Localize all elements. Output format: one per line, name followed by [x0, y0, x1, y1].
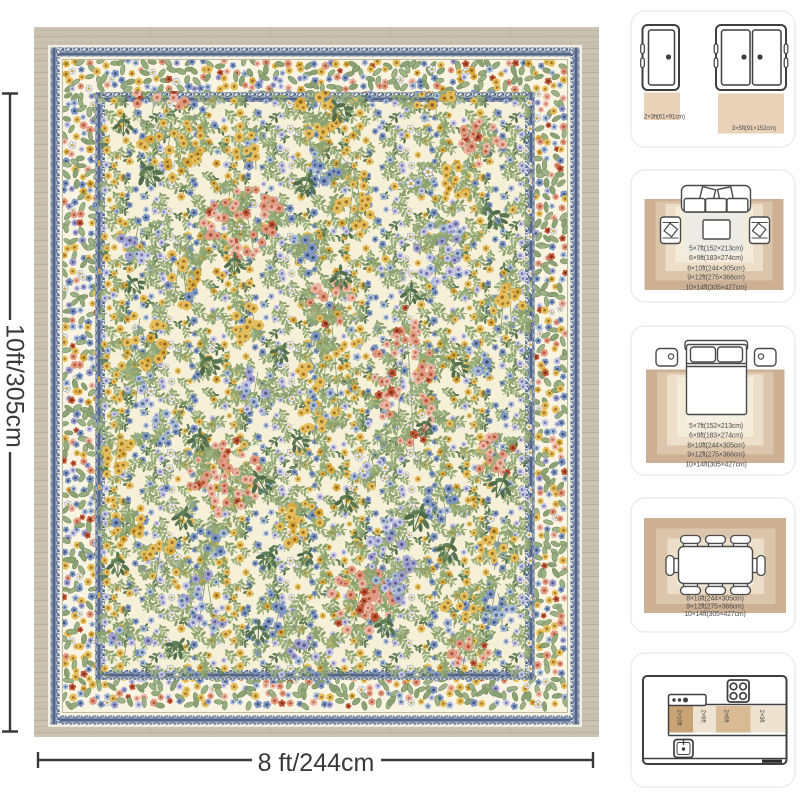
svg-text:5×7ft(152×213cm): 5×7ft(152×213cm)	[689, 246, 743, 253]
svg-text:10×14ft(305×427cm): 10×14ft(305×427cm)	[685, 284, 746, 291]
svg-text:3×5ft(91×152cm): 3×5ft(91×152cm)	[732, 126, 776, 132]
svg-text:6×9ft(183×274cm): 6×9ft(183×274cm)	[689, 433, 743, 440]
svg-text:2×10ft: 2×10ft	[676, 710, 682, 727]
svg-text:2×3ft: 2×3ft	[758, 710, 764, 723]
svg-text:2×3ft(61×91cm): 2×3ft(61×91cm)	[644, 115, 685, 121]
svg-text:8×10ft(244×305cm): 8×10ft(244×305cm)	[686, 595, 744, 602]
svg-text:8×10ft(244×305cm): 8×10ft(244×305cm)	[687, 265, 745, 272]
svg-text:8×10ft(244×305cm): 8×10ft(244×305cm)	[687, 442, 745, 449]
svg-text:5×7ft(152×213cm): 5×7ft(152×213cm)	[689, 423, 743, 430]
svg-text:2×6ft: 2×6ft	[723, 710, 729, 723]
svg-text:10×14ft(305×427cm): 10×14ft(305×427cm)	[684, 611, 745, 618]
svg-text:2×8ft: 2×8ft	[700, 710, 706, 723]
svg-text:10×14ft(305×427cm): 10×14ft(305×427cm)	[685, 461, 746, 468]
svg-text:9×12ft(275×366cm): 9×12ft(275×366cm)	[687, 275, 745, 282]
svg-text:9×12ft(275×366cm): 9×12ft(275×366cm)	[686, 603, 744, 610]
svg-text:6×9ft(183×274cm): 6×9ft(183×274cm)	[689, 255, 743, 262]
svg-text:9×12ft(275×366cm): 9×12ft(275×366cm)	[687, 452, 745, 459]
svg-text:8 ft/244cm: 8 ft/244cm	[258, 749, 375, 777]
svg-text:10ft/305cm: 10ft/305cm	[0, 324, 28, 448]
